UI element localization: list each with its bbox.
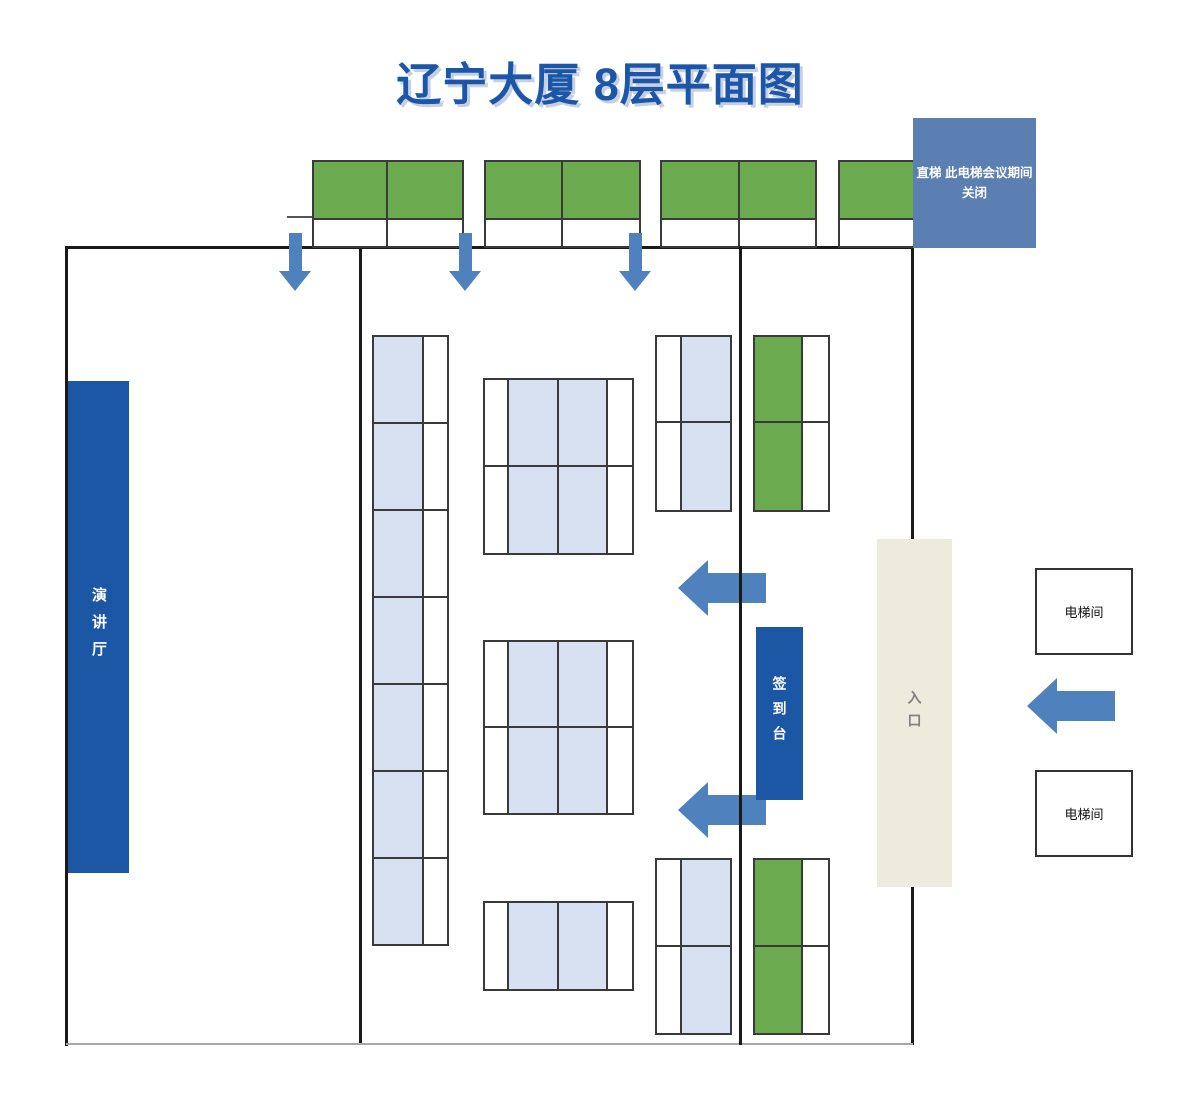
arrow-down-icon [279, 233, 311, 291]
seat-cell [802, 946, 829, 1034]
seat-cell [373, 423, 423, 510]
green-table-bottom [753, 858, 830, 1035]
top-elevator-bank-4 [838, 160, 915, 248]
seat-cell [607, 727, 633, 814]
elevator-cell-door [313, 219, 387, 247]
note-line-2: 关闭 [962, 183, 987, 203]
top-elevator-bank-2 [484, 160, 641, 248]
arrow-shaft [459, 233, 472, 271]
seat-cell [656, 422, 681, 511]
arrow-head [449, 271, 481, 291]
seat-cell [656, 946, 681, 1034]
seat-cell [508, 727, 558, 814]
seat-cell [558, 641, 607, 727]
elevator-cell-door [485, 219, 562, 247]
elevator-cell-green [485, 161, 562, 219]
seat-cell [607, 466, 633, 554]
entrance-label: 入口 [908, 690, 922, 736]
elevator-cell-green [661, 161, 739, 219]
seating-column-table [372, 335, 449, 946]
seat-cell [681, 336, 731, 422]
green-table-top [753, 335, 830, 512]
seat-cell [484, 641, 508, 727]
sign-in-desk: 签到台 [756, 627, 803, 800]
seat-cell [681, 859, 731, 946]
seat-cell [373, 858, 423, 945]
arrow-shaft [629, 233, 642, 271]
arrow-head [1027, 678, 1057, 734]
seat-cell [656, 859, 681, 946]
note-line-1: 直梯 此电梯会议期间 [917, 163, 1033, 183]
seat-cell [607, 379, 633, 466]
seat-cell [656, 336, 681, 422]
top-elevator-bank-3 [660, 160, 817, 248]
center-table-middle [483, 640, 634, 815]
seat-cell [754, 859, 802, 946]
floor-plan: 辽宁大厦 8层平面图 直梯 此电梯会议期间 关闭 [0, 0, 1200, 1100]
lecture-hall: 演讲厅 [68, 381, 129, 873]
seat-cell [607, 641, 633, 727]
seat-cell [423, 597, 448, 684]
center-table-bottom [483, 901, 634, 991]
elevator-cell-green [739, 161, 816, 219]
closed-elevator-note: 直梯 此电梯会议期间 关闭 [913, 118, 1036, 248]
elevator-room-bottom: 电梯间 [1035, 770, 1133, 857]
sign-in-desk-label: 签到台 [773, 676, 787, 751]
seat-cell [423, 510, 448, 597]
elevator-cell-door [661, 219, 739, 247]
seat-cell [754, 422, 802, 511]
arrow-head [678, 782, 708, 838]
top-elevator-bank-1 [312, 160, 464, 248]
seat-cell [423, 771, 448, 858]
seat-cell [508, 641, 558, 727]
arrow-shaft [289, 233, 302, 271]
elevator-cell-door [839, 219, 914, 247]
arrow-shaft [708, 573, 766, 603]
elevator-cell-door [739, 219, 816, 247]
seat-cell [558, 379, 607, 466]
arrow-shaft [1057, 691, 1115, 721]
seat-cell [484, 902, 508, 990]
seat-cell [558, 466, 607, 554]
seat-cell [484, 379, 508, 466]
arrow-left-icon [678, 560, 766, 616]
seat-cell [508, 902, 558, 990]
arrow-head [678, 560, 708, 616]
wall-bottom [66, 1043, 913, 1045]
seat-cell [802, 422, 829, 511]
arrow-down-icon [449, 233, 481, 291]
elevator-room-label: 电梯间 [1064, 602, 1103, 621]
arrow-left-icon [678, 782, 766, 838]
arrow-head [619, 271, 651, 291]
elevator-cell-green [562, 161, 640, 219]
seat-cell [373, 771, 423, 858]
seat-cell [423, 684, 448, 771]
seat-cell [508, 379, 558, 466]
seat-cell [423, 336, 448, 423]
seat-cell [681, 422, 731, 511]
seat-cell [484, 466, 508, 554]
elevator-cell-green [387, 161, 463, 219]
arrow-down-icon [619, 233, 651, 291]
seat-cell [754, 946, 802, 1034]
seat-cell [558, 902, 607, 990]
top-band-ledge [287, 216, 314, 218]
seat-cell [754, 336, 802, 422]
entrance-strip: 入口 [877, 539, 952, 887]
wall-interior-2 [739, 246, 742, 1045]
seat-cell [607, 902, 633, 990]
elevator-cell-green [313, 161, 387, 219]
seat-cell [508, 466, 558, 554]
seat-cell [373, 684, 423, 771]
seat-cell [423, 423, 448, 510]
seat-cell [558, 727, 607, 814]
page-title: 辽宁大厦 8层平面图 [0, 48, 1200, 113]
elevator-room-top: 电梯间 [1035, 568, 1133, 655]
arrow-left-icon [1027, 678, 1115, 734]
seat-cell [681, 946, 731, 1034]
aisle-table-bottom [655, 858, 732, 1035]
seat-cell [802, 336, 829, 422]
seat-cell [423, 858, 448, 945]
elevator-room-label: 电梯间 [1064, 804, 1103, 823]
lecture-hall-label: 演讲厅 [91, 587, 106, 668]
seat-cell [373, 597, 423, 684]
elevator-cell-green [839, 161, 914, 219]
seat-cell [802, 859, 829, 946]
seat-cell [484, 727, 508, 814]
center-table-top [483, 378, 634, 555]
wall-interior-1 [359, 246, 362, 1045]
arrow-head [279, 271, 311, 291]
seat-cell [373, 510, 423, 597]
seat-cell [373, 336, 423, 423]
aisle-table-top [655, 335, 732, 512]
